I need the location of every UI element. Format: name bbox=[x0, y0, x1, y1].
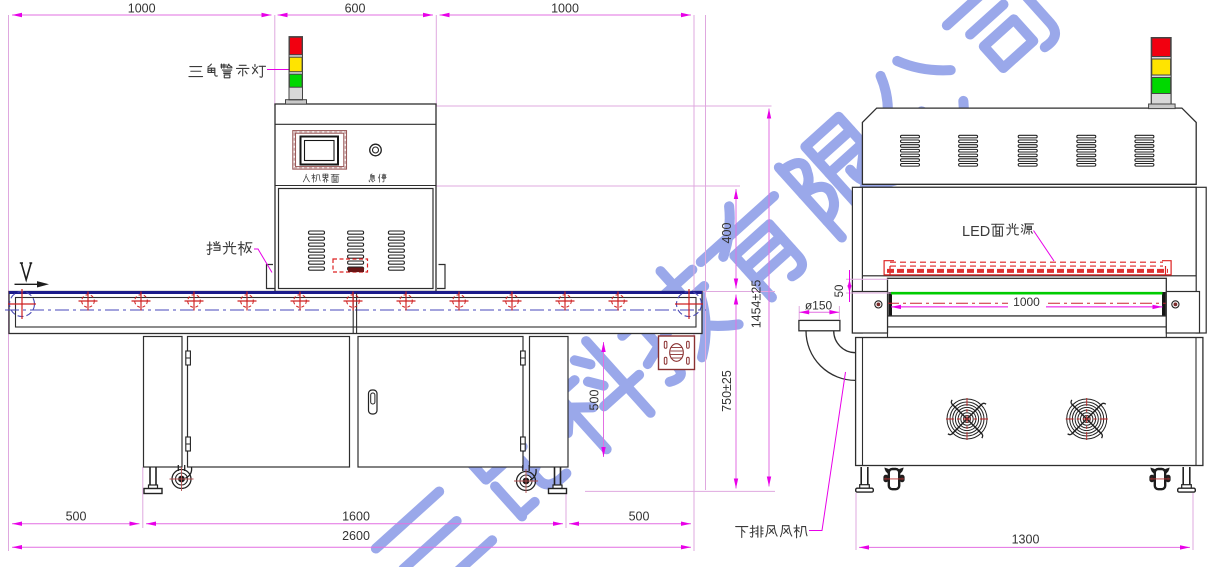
svg-text:1300: 1300 bbox=[1012, 533, 1040, 547]
svg-text:LED: LED bbox=[962, 224, 990, 240]
svg-text:ø150: ø150 bbox=[805, 299, 833, 313]
svg-text:500: 500 bbox=[629, 510, 650, 524]
svg-text:1454±25: 1454±25 bbox=[750, 280, 764, 329]
svg-text:750±25: 750±25 bbox=[720, 370, 734, 412]
svg-text:500: 500 bbox=[66, 510, 87, 524]
svg-text:1600: 1600 bbox=[342, 510, 370, 524]
svg-text:1000: 1000 bbox=[551, 2, 579, 16]
svg-text:50: 50 bbox=[834, 285, 846, 298]
svg-text:1000: 1000 bbox=[128, 2, 156, 16]
svg-text:600: 600 bbox=[345, 2, 366, 16]
svg-text:2600: 2600 bbox=[342, 529, 370, 543]
svg-text:500: 500 bbox=[588, 390, 602, 411]
svg-text:400: 400 bbox=[720, 223, 734, 244]
svg-text:1000: 1000 bbox=[1013, 295, 1040, 309]
